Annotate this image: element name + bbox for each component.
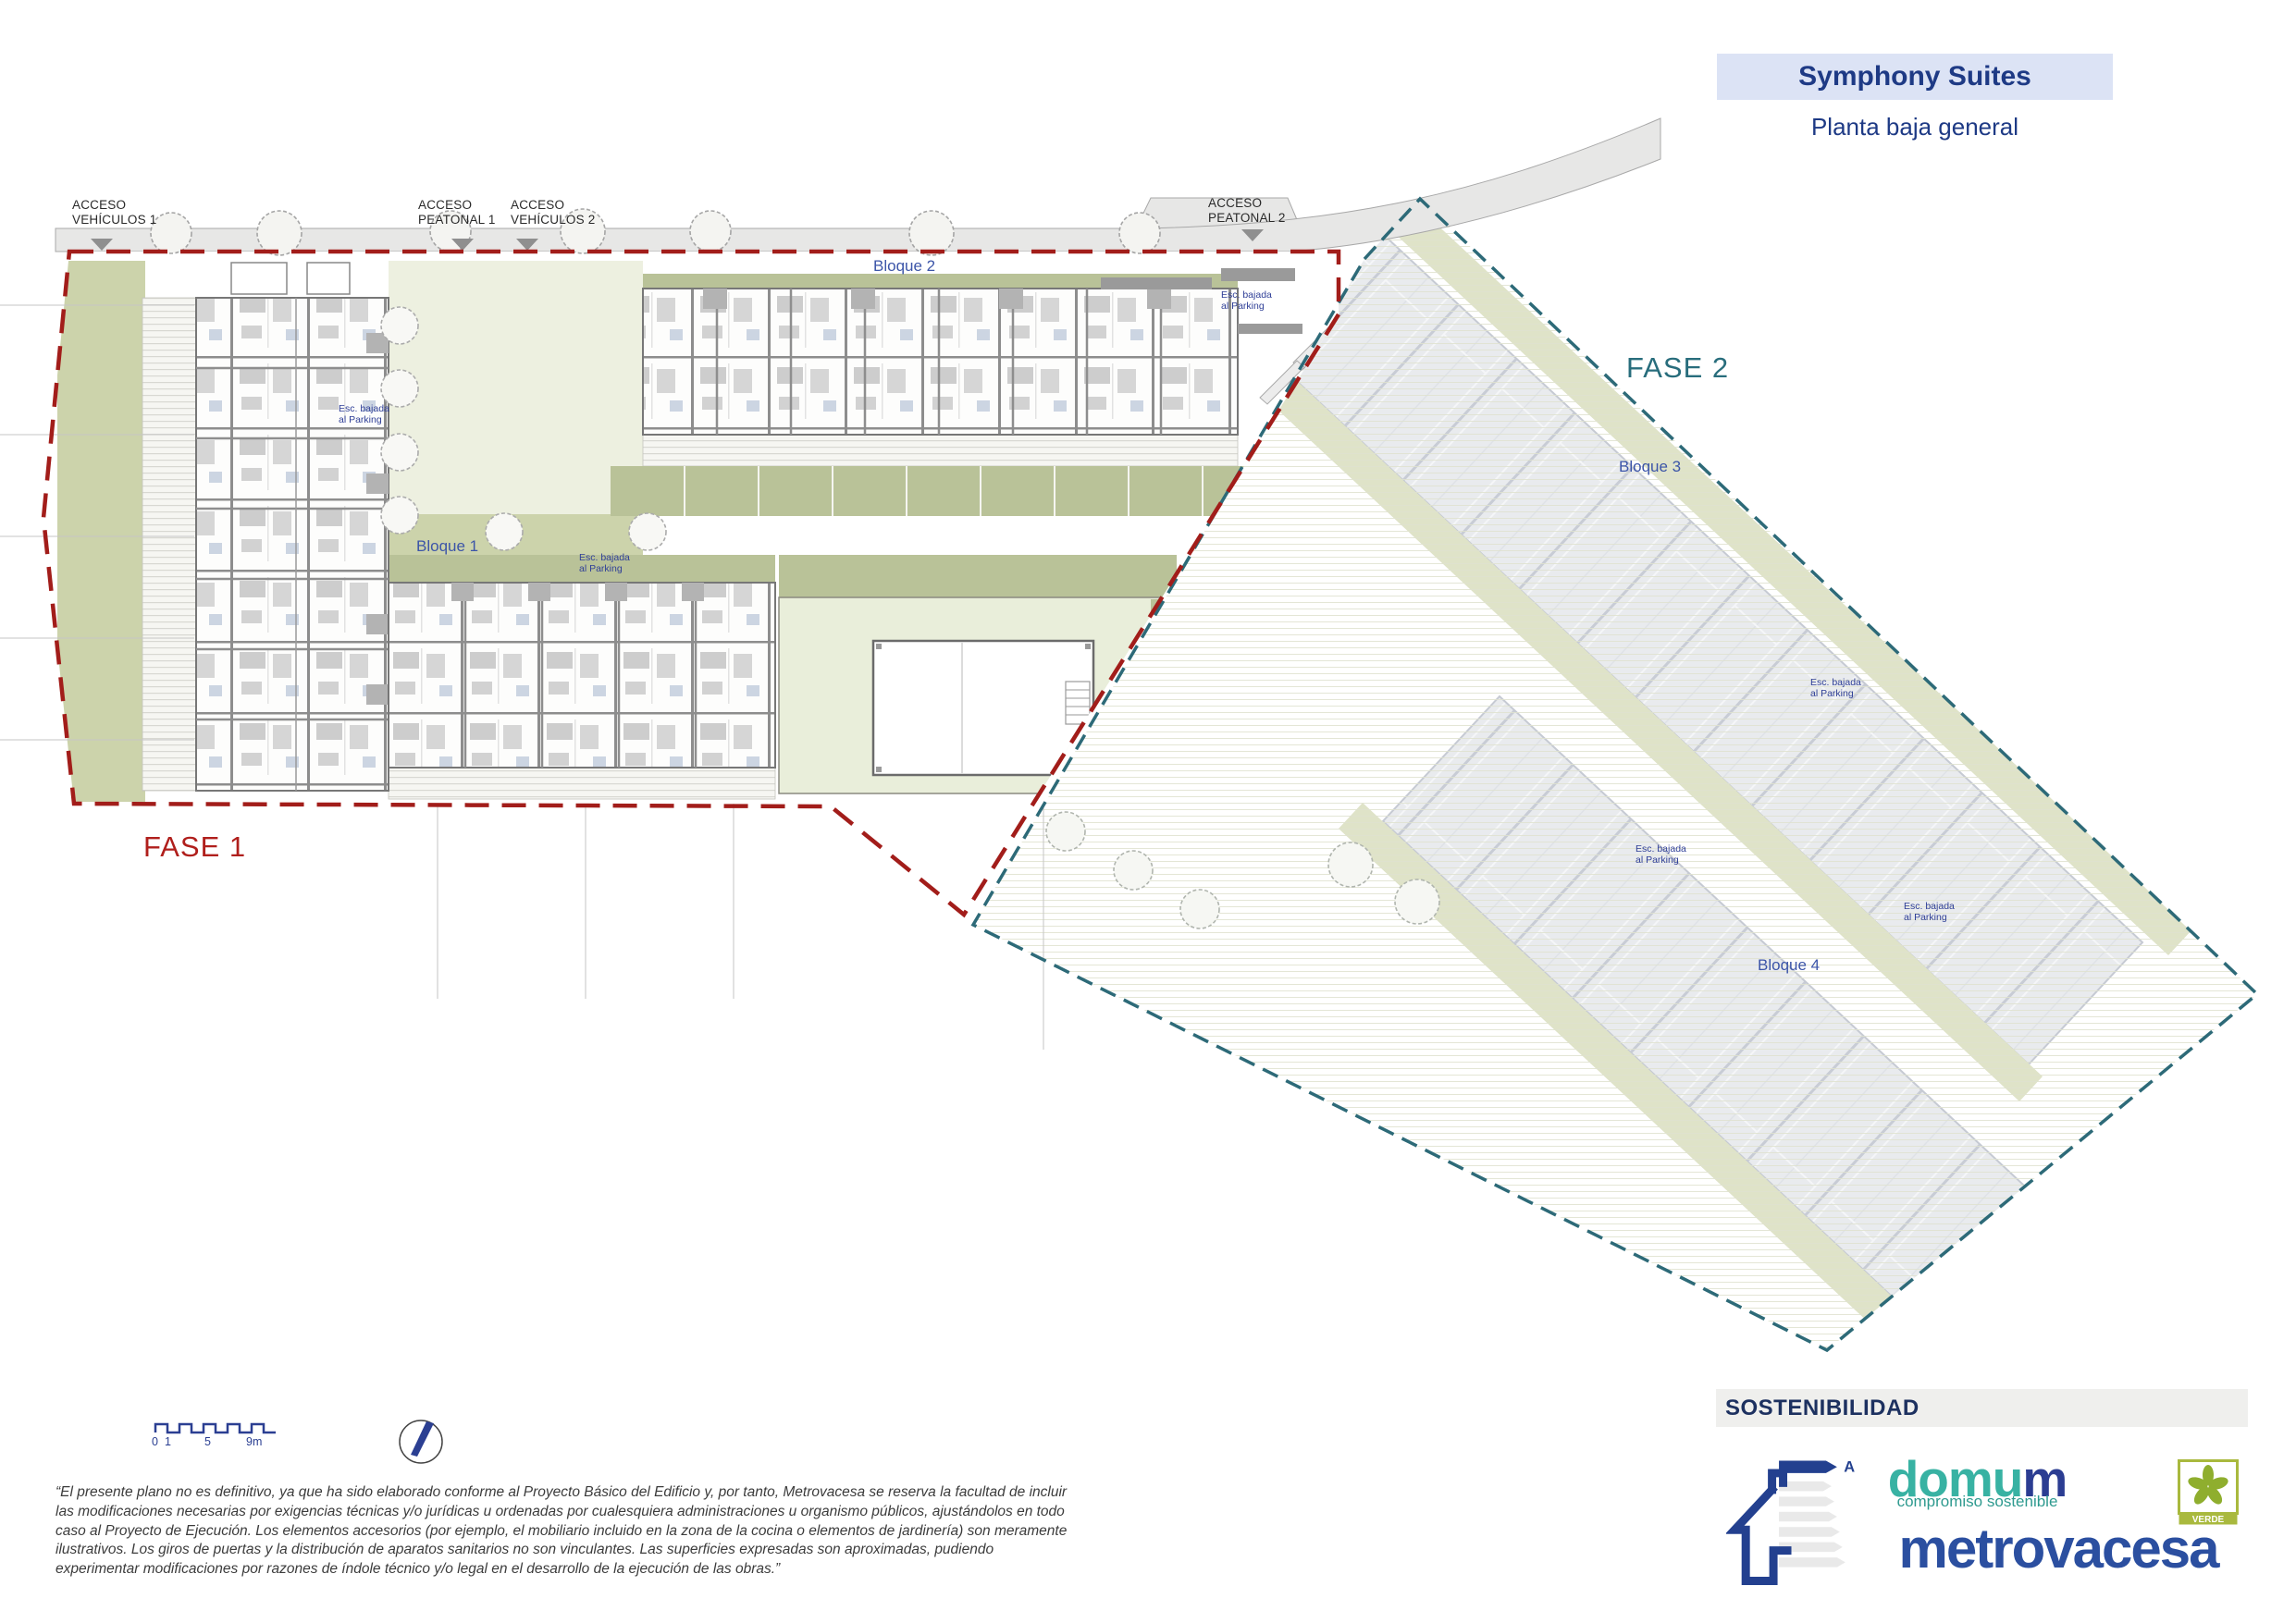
north-arrow-icon: [400, 1420, 442, 1463]
access-label-peatonal2: ACCESO PEATONAL 2: [1208, 196, 1299, 225]
scale-number: 0: [152, 1435, 158, 1448]
parking-stair-label: Esc. bajada al Parking: [1810, 677, 1877, 700]
scale-number: 9m: [246, 1435, 262, 1448]
road-curve: [1147, 118, 1660, 252]
access-label-vehiculos2: ACCESO VEHÍCULOS 2: [511, 198, 603, 227]
parking-stair-label: Esc. bajada al Parking: [1636, 843, 1702, 867]
verde-label: VERDE: [2192, 1515, 2225, 1525]
swimming-pool: [873, 641, 1093, 775]
bloque2-building: [643, 289, 1238, 435]
project-title: Symphony Suites: [1798, 61, 2031, 92]
terrace-deck: [389, 768, 775, 799]
metrovacesa-logo: metrovacesa: [1864, 1521, 2253, 1577]
bloque3-label: Bloque 3: [1619, 458, 1681, 476]
scale-number: 1: [165, 1435, 171, 1448]
bloque1-label: Bloque 1: [416, 537, 478, 556]
parking-stair-label: Esc. bajada al Parking: [579, 552, 646, 575]
bloque2-label: Bloque 2: [873, 257, 935, 276]
terrace-deck: [142, 298, 196, 791]
fase1-label: FASE 1: [143, 830, 246, 864]
scale-bar: [155, 1424, 276, 1432]
bloque1-south-wing: [389, 583, 775, 768]
access-label-vehiculos1: ACCESO VEHÍCULOS 1: [72, 198, 165, 227]
sostenibilidad-bar: SOSTENIBILIDAD: [1716, 1389, 2248, 1427]
scale-number: 5: [204, 1435, 211, 1448]
parking-stair-label: Esc. bajada al Parking: [1221, 289, 1288, 313]
project-title-box: Symphony Suites: [1717, 54, 2113, 100]
energy-class-letter: A: [1844, 1458, 1855, 1475]
site-plan-page: ACCESO VEHÍCULOS 1 ACCESO PEATONAL 1 ACC…: [0, 0, 2296, 1623]
legal-disclaimer: “El presente plano no es definitivo, ya …: [56, 1483, 1080, 1580]
sostenibilidad-label: SOSTENIBILIDAD: [1716, 1396, 1920, 1421]
site-plan-drawing: [0, 0, 2296, 1623]
parking-stair-label: Esc. bajada al Parking: [1904, 901, 1970, 924]
parking-stair-label: Esc. bajada al Parking: [339, 403, 405, 426]
domum-tagline: compromiso sostenible: [1873, 1493, 2081, 1511]
access-label-peatonal1: ACCESO PEATONAL 1: [418, 198, 509, 227]
bloque4-label: Bloque 4: [1758, 956, 1820, 975]
bloque1-west-wing: [196, 298, 389, 791]
terrace-deck: [643, 435, 1238, 466]
fase2-label: FASE 2: [1626, 351, 1729, 385]
plan-subtitle: Planta baja general: [1717, 113, 2113, 141]
verde-certificate-icon: VERDE: [2178, 1459, 2239, 1526]
energy-label-house-icon: A: [1726, 1454, 1865, 1588]
